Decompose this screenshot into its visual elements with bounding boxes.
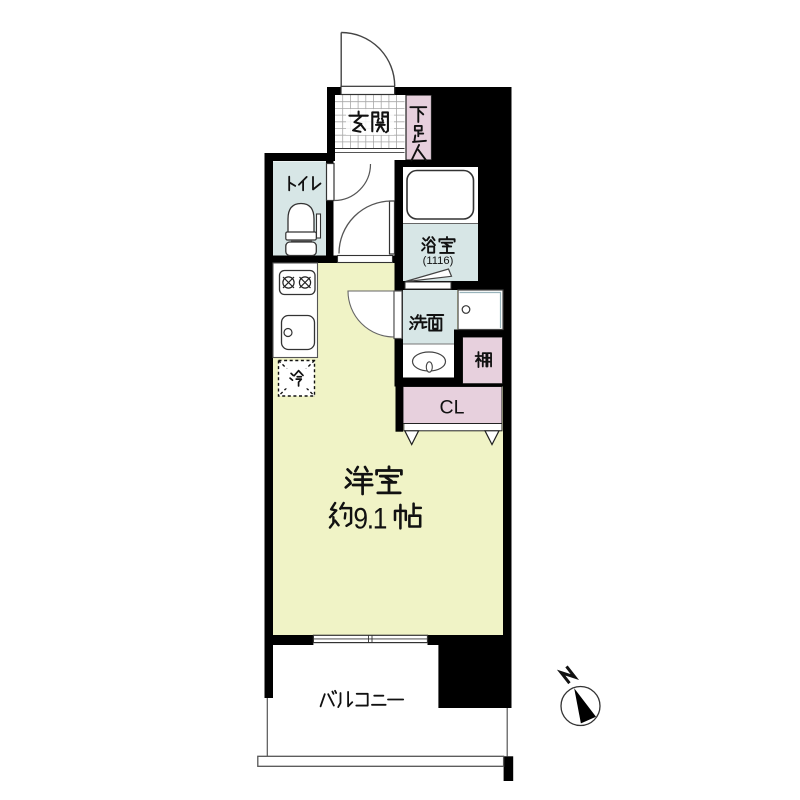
svg-text:9.1: 9.1 [353, 501, 386, 535]
svg-text:CL: CL [440, 397, 465, 419]
svg-text:(1116): (1116) [423, 255, 454, 267]
